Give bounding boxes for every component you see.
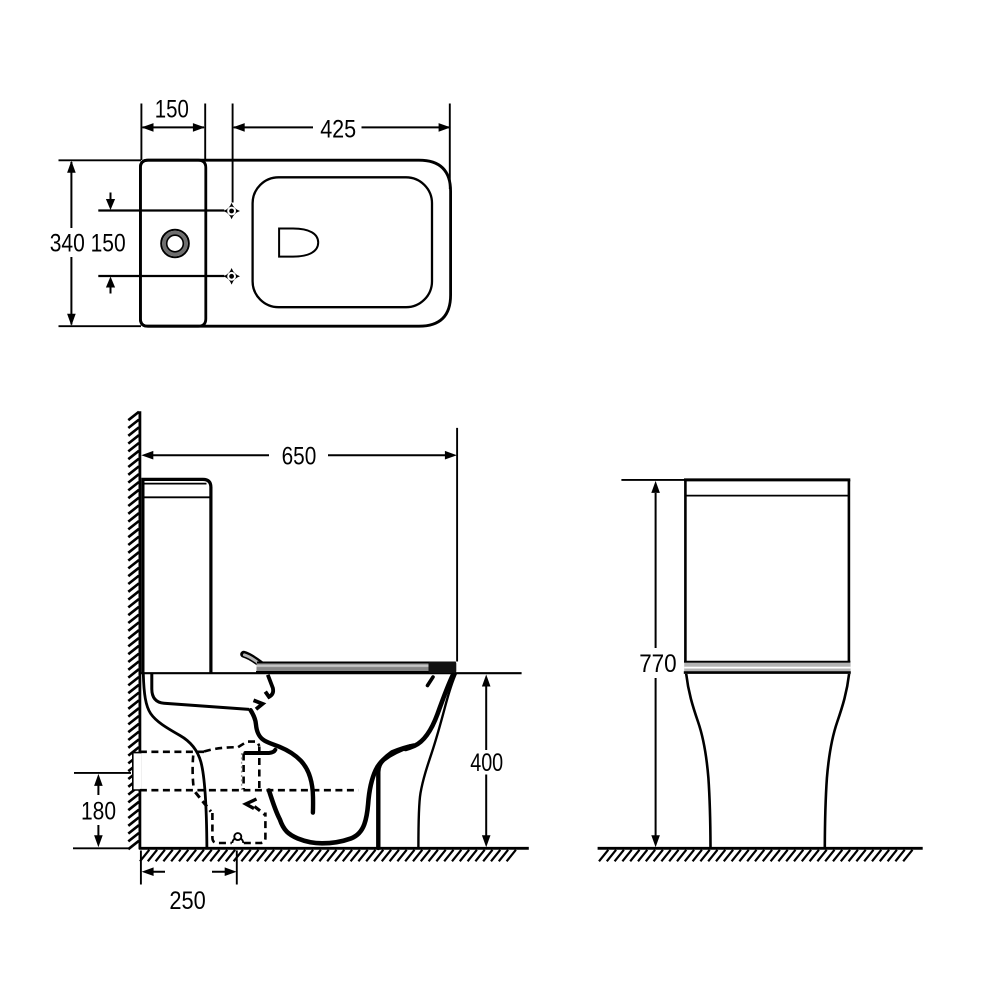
svg-text:400: 400 — [470, 749, 503, 777]
svg-text:650: 650 — [282, 443, 317, 471]
svg-text:180: 180 — [81, 797, 116, 825]
svg-text:770: 770 — [639, 650, 677, 678]
svg-text:340 150: 340 150 — [50, 230, 126, 258]
svg-text:250: 250 — [169, 887, 205, 915]
svg-text:150: 150 — [155, 95, 189, 123]
svg-text:425: 425 — [320, 116, 356, 144]
